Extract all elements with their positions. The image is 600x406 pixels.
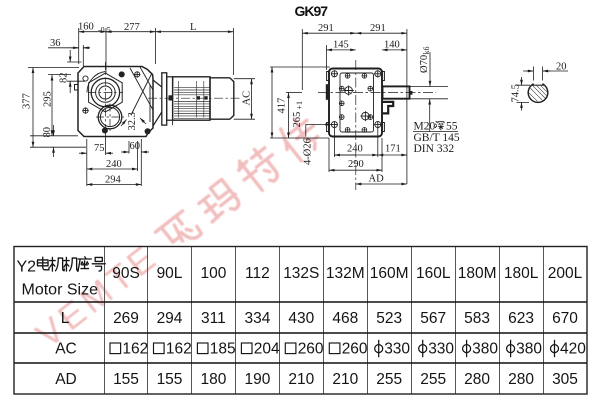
svg-text:265: 265 <box>292 112 303 128</box>
svg-text:4-Ø26: 4-Ø26 <box>303 138 314 165</box>
svg-text:60: 60 <box>130 141 141 152</box>
svg-text:132S: 132S <box>283 265 319 282</box>
svg-text:305: 305 <box>552 371 578 388</box>
svg-text:260: 260 <box>342 341 368 358</box>
svg-text:100: 100 <box>200 265 226 282</box>
svg-text:291: 291 <box>318 23 334 34</box>
svg-text:AC: AC <box>242 91 253 106</box>
svg-text:162: 162 <box>122 341 148 358</box>
svg-text:523: 523 <box>376 310 402 327</box>
svg-text:380: 380 <box>472 341 498 358</box>
svg-text:80: 80 <box>42 127 53 138</box>
svg-text:160L: 160L <box>416 265 451 282</box>
svg-text:430: 430 <box>288 310 314 327</box>
svg-text:294: 294 <box>157 310 183 327</box>
svg-text:240: 240 <box>347 144 363 155</box>
svg-text:180L: 180L <box>504 265 539 282</box>
svg-text:155: 155 <box>113 371 139 388</box>
svg-text:185: 185 <box>210 341 236 358</box>
svg-text:277: 277 <box>124 22 140 33</box>
svg-text:k6: k6 <box>422 47 431 55</box>
svg-text:330: 330 <box>428 341 454 358</box>
svg-text:L: L <box>190 22 196 33</box>
svg-text:255: 255 <box>420 371 446 388</box>
svg-text:140: 140 <box>384 40 400 51</box>
svg-text:160: 160 <box>78 22 94 33</box>
svg-text:M20: M20 <box>414 121 436 133</box>
svg-text:AD: AD <box>369 174 385 185</box>
svg-text:468: 468 <box>332 310 358 327</box>
svg-text:20: 20 <box>556 62 567 73</box>
svg-text:DIN 332: DIN 332 <box>414 143 455 155</box>
svg-text:55: 55 <box>446 121 458 133</box>
svg-text:Y2: Y2 <box>17 259 37 276</box>
svg-text:90S: 90S <box>112 265 140 282</box>
svg-text:280: 280 <box>464 371 490 388</box>
svg-text:82: 82 <box>59 73 70 84</box>
svg-text:75: 75 <box>94 143 105 154</box>
svg-text:420: 420 <box>560 341 586 358</box>
svg-text:670: 670 <box>552 310 578 327</box>
svg-text:Ø70: Ø70 <box>419 55 430 73</box>
svg-text:380: 380 <box>516 341 542 358</box>
svg-text:AC: AC <box>55 341 77 358</box>
svg-text:155: 155 <box>157 371 183 388</box>
svg-text:294: 294 <box>105 174 122 185</box>
svg-text:210: 210 <box>288 371 314 388</box>
svg-text:90L: 90L <box>157 265 183 282</box>
svg-text:290: 290 <box>348 159 364 170</box>
svg-text:GK97: GK97 <box>295 3 329 19</box>
svg-text:567: 567 <box>420 310 446 327</box>
svg-text:291: 291 <box>370 23 386 34</box>
svg-text:200L: 200L <box>548 265 583 282</box>
svg-text:74.5: 74.5 <box>511 84 522 102</box>
svg-text:160M: 160M <box>370 265 409 282</box>
svg-text:583: 583 <box>464 310 490 327</box>
svg-text:190: 190 <box>244 371 270 388</box>
svg-text:-0.5: -0.5 <box>98 26 111 35</box>
svg-text:AD: AD <box>55 371 77 388</box>
svg-text:132M: 132M <box>326 265 365 282</box>
svg-text:204: 204 <box>254 341 280 358</box>
svg-text:145: 145 <box>333 40 349 51</box>
svg-text:255: 255 <box>376 371 402 388</box>
svg-text:Motor Size: Motor Size <box>22 282 99 299</box>
svg-text:623: 623 <box>508 310 534 327</box>
svg-text:311: 311 <box>201 310 226 327</box>
svg-text:280: 280 <box>508 371 534 388</box>
svg-text:334: 334 <box>244 310 270 327</box>
svg-text:36: 36 <box>50 38 61 49</box>
svg-text:260: 260 <box>298 341 324 358</box>
svg-text:180: 180 <box>200 371 226 388</box>
svg-text:210: 210 <box>332 371 358 388</box>
svg-text:330: 330 <box>384 341 410 358</box>
svg-text:240: 240 <box>106 159 122 170</box>
svg-text:112: 112 <box>245 265 270 282</box>
svg-text:32.3: 32.3 <box>127 112 138 130</box>
svg-text:171: 171 <box>385 144 401 155</box>
svg-text:162: 162 <box>166 341 192 358</box>
svg-text:269: 269 <box>113 310 139 327</box>
svg-text:180M: 180M <box>458 265 497 282</box>
svg-text:+1: +1 <box>295 101 304 110</box>
svg-text:L: L <box>61 310 70 327</box>
svg-text:295: 295 <box>43 91 54 107</box>
svg-text:417: 417 <box>277 98 288 114</box>
svg-text:377: 377 <box>22 93 33 109</box>
